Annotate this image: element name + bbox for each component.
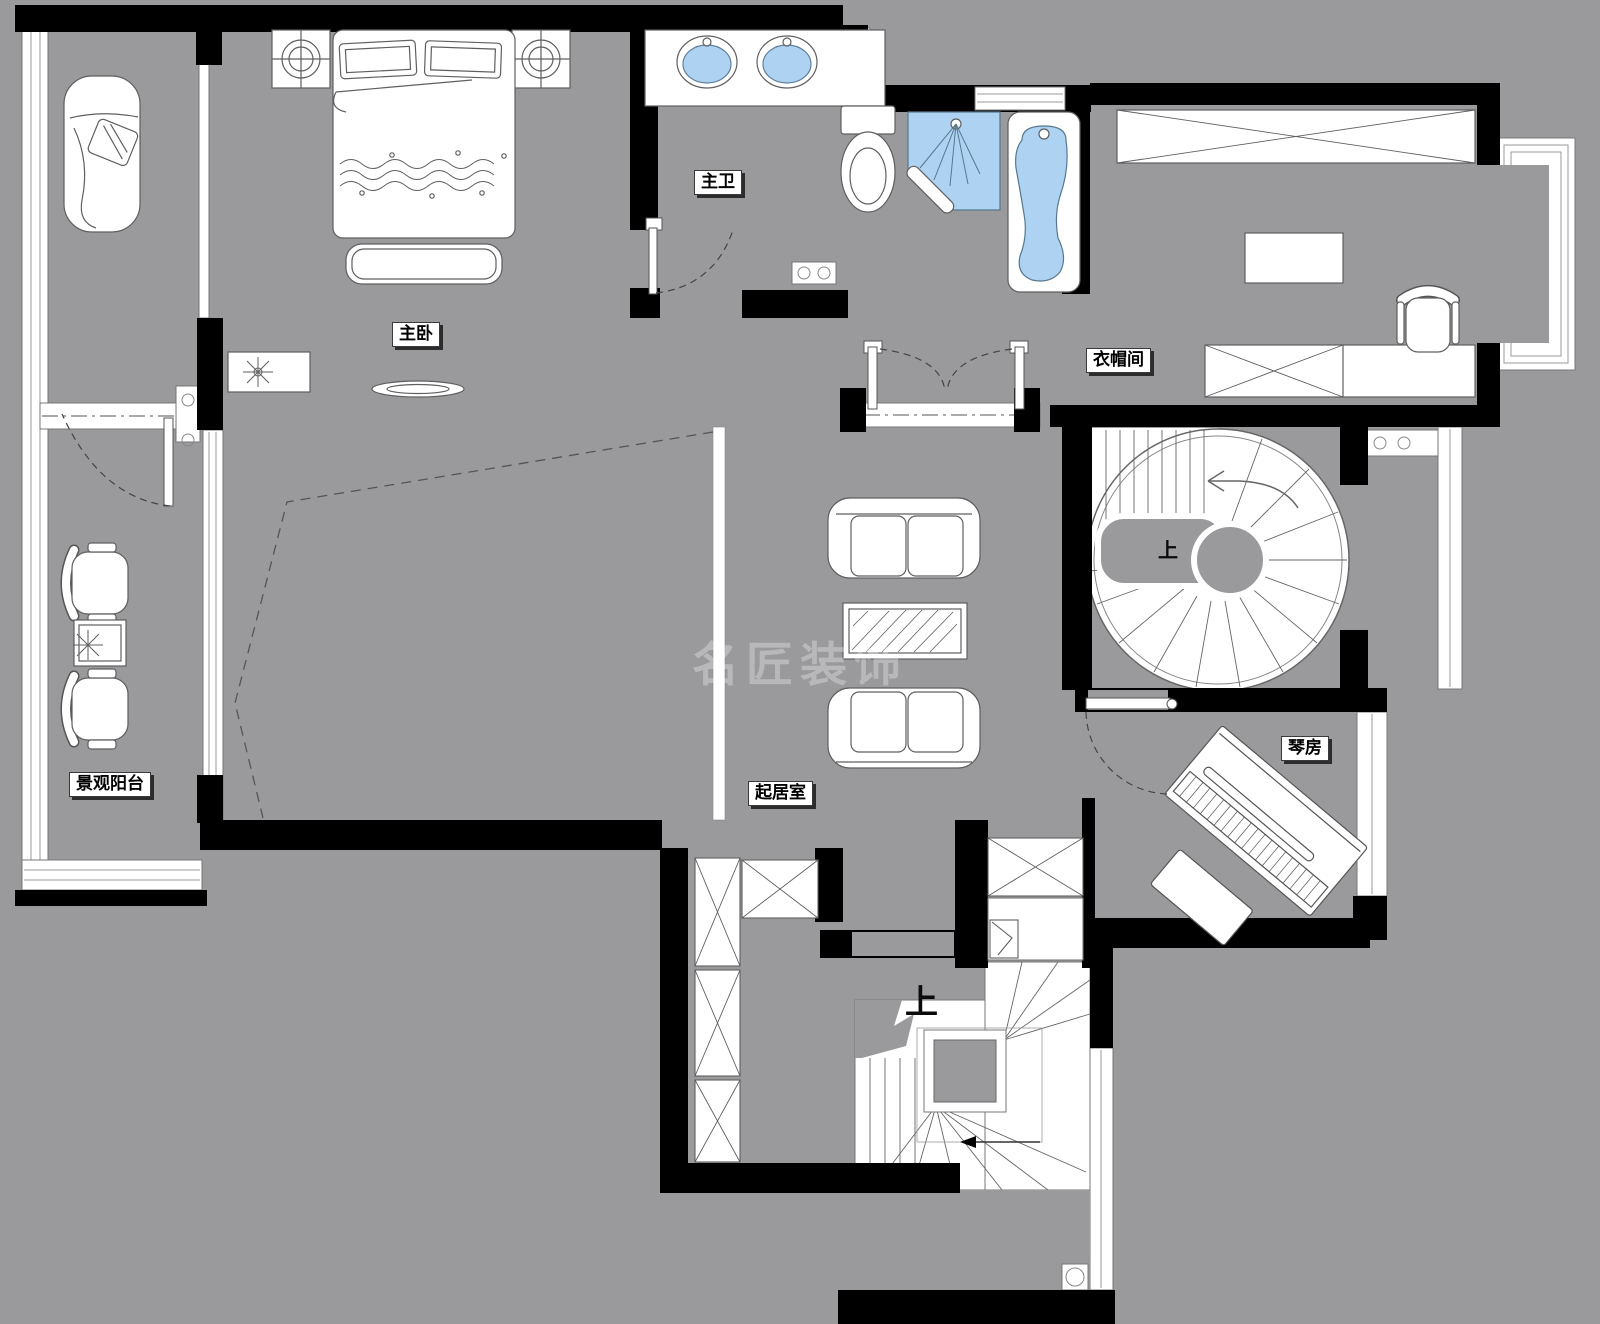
plant-icon [73, 630, 103, 660]
bedroom-west-glass [199, 57, 209, 318]
balcony-chair-top [72, 552, 128, 614]
bed-bench [346, 244, 502, 284]
double-door-right-leaf [1015, 347, 1024, 409]
plant-icon [243, 357, 273, 387]
balcony-door-leaf [164, 418, 173, 506]
bath-north-window [975, 87, 1065, 110]
balcony-plant-table [74, 620, 126, 666]
toilet-tank [841, 106, 895, 134]
balcony-west-window [22, 28, 48, 896]
label-view-balcony: 景观阳台 [69, 772, 151, 797]
bath-drain-box [792, 262, 836, 284]
balcony-chair-bottom [72, 678, 128, 740]
stair-east-shelf [1360, 430, 1438, 456]
living-divider [713, 427, 725, 820]
label-master-bedroom: 主卧 [392, 322, 440, 347]
floor-plan-drawing [0, 0, 1600, 1324]
piano-door-leaf [1086, 698, 1170, 709]
lower-staircase [848, 962, 1090, 1290]
double-door-left-leaf [868, 347, 877, 409]
label-master-bathroom: 主卫 [694, 170, 742, 195]
label-piano-room: 琴房 [1281, 736, 1329, 761]
desk-chair [1406, 298, 1450, 352]
cloakroom-desk [1245, 233, 1343, 283]
label-up-spiral: 上 [1158, 534, 1178, 563]
toilet-bowl [841, 132, 895, 212]
floor-plan: 主卫 主卧 衣帽间 起居室 琴房 景观阳台 上 上 名匠装饰 [0, 0, 1600, 1324]
label-cloakroom: 衣帽间 [1086, 348, 1151, 373]
bedroom-dish [372, 381, 464, 397]
bath-door-leaf [649, 228, 657, 294]
label-up-main: 上 [905, 975, 938, 1023]
shaft-box [990, 920, 1018, 958]
bay-window-interior [1477, 165, 1549, 343]
living-west-glass [203, 430, 223, 820]
room-below-stairs [848, 1190, 1090, 1290]
storage-closet [988, 838, 1083, 960]
balcony-south-window [22, 860, 202, 890]
label-living-room: 起居室 [748, 781, 813, 806]
wardrobe-bottom [1205, 345, 1475, 397]
spiral-staircase [1087, 428, 1349, 691]
